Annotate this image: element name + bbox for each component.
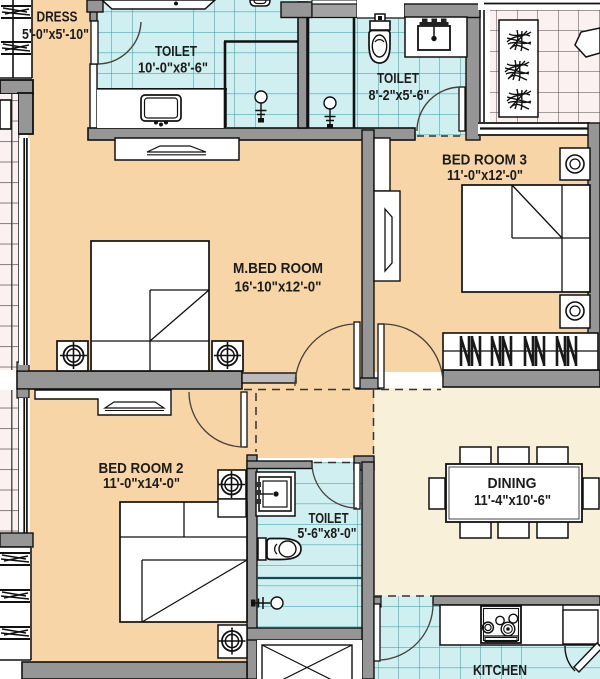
svg-text:DRESS: DRESS (37, 9, 78, 26)
svg-text:DINING: DINING (488, 475, 537, 492)
svg-text:11'-4"x10'-6": 11'-4"x10'-6" (474, 493, 551, 509)
svg-text:KITCHEN: KITCHEN (473, 662, 527, 679)
svg-text:16'-10"x12'-0": 16'-10"x12'-0" (235, 280, 322, 296)
svg-text:TOILET: TOILET (377, 70, 419, 87)
svg-text:8'-2"x5'-6": 8'-2"x5'-6" (369, 88, 430, 104)
svg-text:10'-0"x8'-6": 10'-0"x8'-6" (138, 61, 208, 77)
svg-text:11'-0"x12'-0": 11'-0"x12'-0" (447, 168, 523, 184)
svg-text:5'-0"x5'-10": 5'-0"x5'-10" (22, 27, 89, 43)
svg-text:M.BED ROOM: M.BED ROOM (233, 260, 323, 277)
svg-text:11'-0"x14'-0": 11'-0"x14'-0" (103, 476, 180, 492)
svg-text:BED ROOM 2: BED ROOM 2 (99, 460, 184, 477)
svg-text:5'-6"x8'-0": 5'-6"x8'-0" (298, 526, 357, 542)
svg-text:BED ROOM 3: BED ROOM 3 (442, 152, 527, 169)
svg-text:TOILET: TOILET (309, 510, 349, 527)
svg-text:TOILET: TOILET (155, 43, 197, 60)
